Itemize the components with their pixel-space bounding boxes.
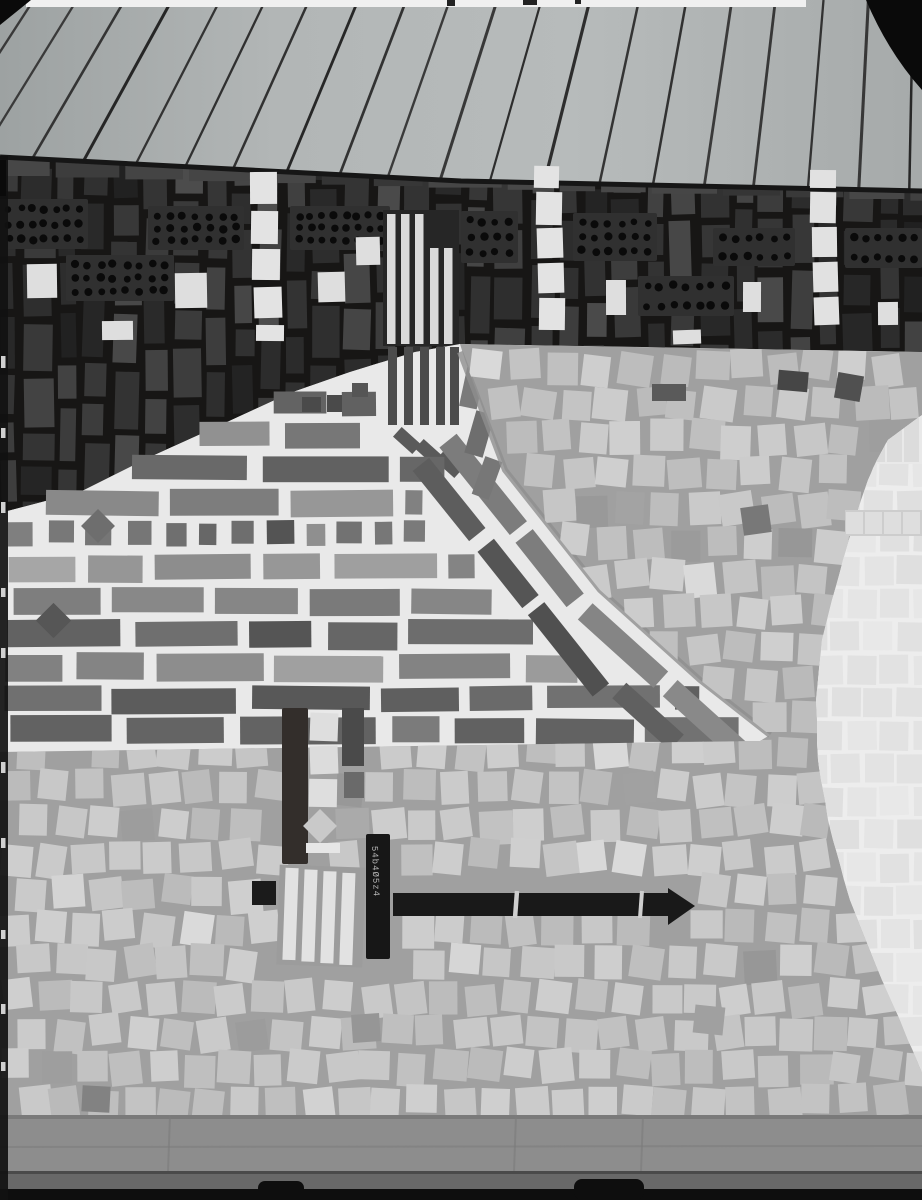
svg-text:54b4Ø5z4: 54b4Ø5z4: [369, 846, 381, 898]
